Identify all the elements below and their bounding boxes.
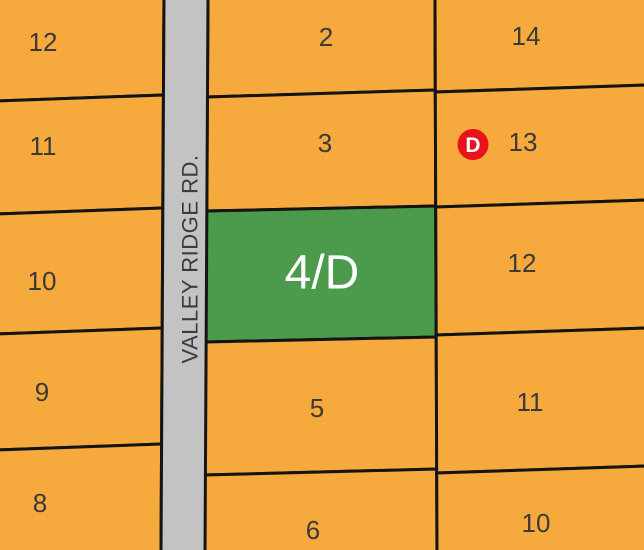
- lot-14-east-label: 14: [512, 21, 541, 51]
- lot-11-west-label: 11: [30, 131, 57, 161]
- marker-d[interactable]: D: [458, 129, 489, 160]
- lot-6[interactable]: [204, 469, 437, 550]
- road-name-label: VALLEY RIDGE RD.: [178, 155, 203, 364]
- plat-map: VALLEY RIDGE RD. 12 11 10 9 8 2 3 4/D 5 …: [0, 0, 644, 550]
- lot-11-east-label: 11: [517, 387, 544, 417]
- lot-9-west-label: 9: [35, 377, 49, 407]
- lot-10-west-label: 10: [28, 266, 57, 296]
- lot-10-east-label: 10: [522, 508, 551, 538]
- lot-2-label: 2: [319, 22, 333, 52]
- lot-12-east-label: 12: [508, 248, 537, 278]
- lot-5-label: 5: [310, 393, 324, 423]
- lot-12-west-label: 12: [29, 27, 58, 57]
- lot-12-west[interactable]: [0, 0, 164, 101]
- lot-13-east-label: 13: [509, 127, 538, 157]
- lot-6-label: 6: [306, 515, 320, 545]
- lot-9-west[interactable]: [0, 328, 162, 450]
- lot-8-west-label: 8: [33, 488, 47, 518]
- lot-3-label: 3: [318, 128, 332, 158]
- lot-11-west[interactable]: [0, 95, 163, 214]
- lot-12-east[interactable]: [436, 200, 644, 335]
- lot-8-west[interactable]: [0, 444, 162, 550]
- marker-d-letter: D: [465, 134, 480, 157]
- lot-10-west[interactable]: [0, 208, 163, 334]
- lot-4d-label: 4/D: [285, 247, 360, 300]
